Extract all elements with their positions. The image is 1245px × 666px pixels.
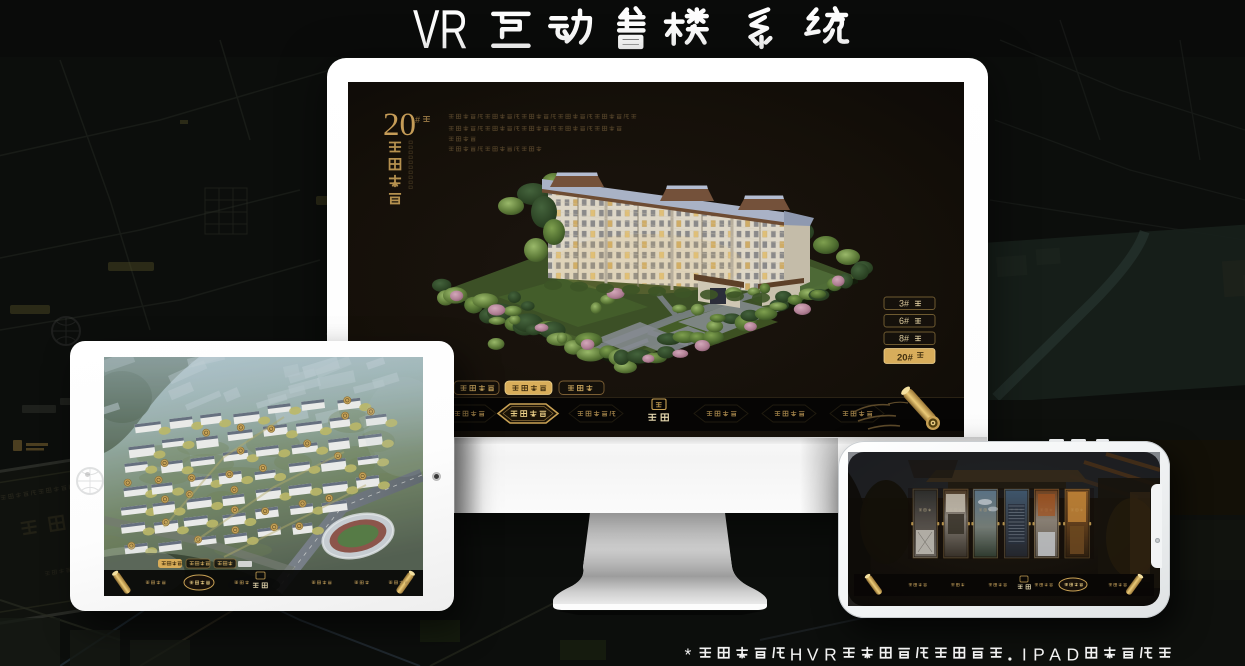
svg-text:*: * [685, 645, 692, 665]
svg-text:3#: 3# [899, 299, 909, 309]
svg-text:A: A [1049, 645, 1061, 665]
svg-text:D: D [1067, 645, 1080, 665]
svg-text:R: R [824, 645, 837, 665]
svg-text:20: 20 [383, 107, 416, 143]
svg-text:6#: 6# [899, 316, 909, 326]
svg-text:8#: 8# [899, 334, 909, 344]
svg-text:20#: 20# [897, 352, 914, 363]
svg-text:H: H [790, 645, 803, 665]
svg-text:P: P [1033, 645, 1045, 665]
svg-text:#: # [415, 115, 420, 125]
svg-text:V: V [807, 645, 819, 665]
svg-text:VR: VR [413, 0, 468, 58]
svg-text:I: I [1022, 645, 1027, 665]
